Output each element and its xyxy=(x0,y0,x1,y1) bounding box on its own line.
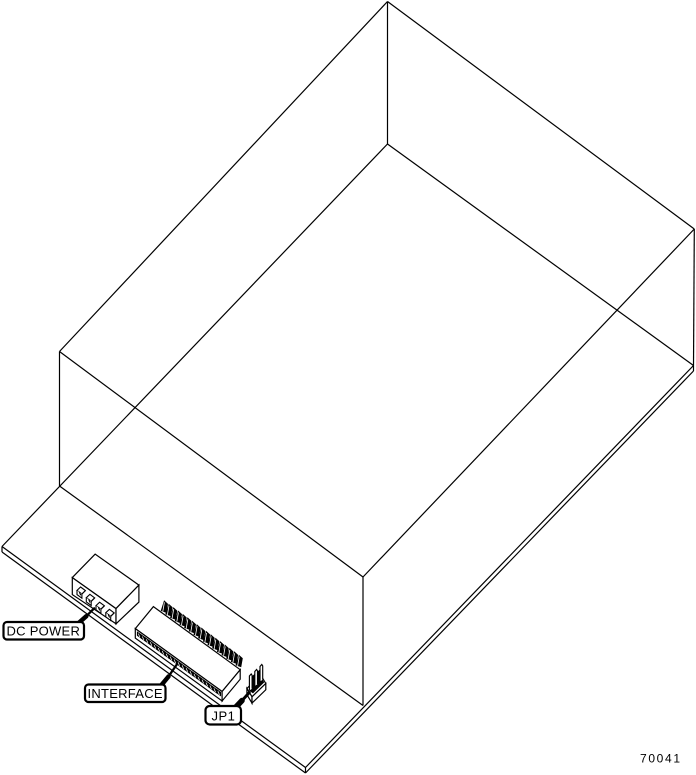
svg-text:70041: 70041 xyxy=(640,751,682,765)
svg-text:DC POWER: DC POWER xyxy=(7,623,81,638)
svg-text:JP1: JP1 xyxy=(212,708,236,723)
svg-text:INTERFACE: INTERFACE xyxy=(88,686,163,701)
